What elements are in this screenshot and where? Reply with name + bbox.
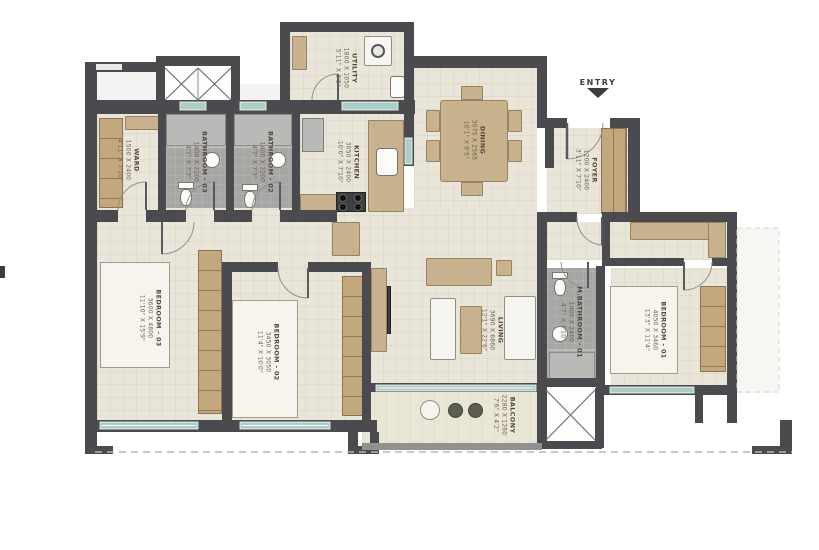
terrace-dashed-outline — [737, 228, 779, 392]
entry-arrow-icon — [587, 88, 609, 98]
room-label-kitchen: KITCHEN 3050 X 2400 10'0" X 7'10" — [336, 120, 361, 204]
room-label-ward: WARD 1500 X 2400 4'11" X 7'10" — [116, 123, 141, 197]
room-label-m-bathroom-01: M.BATHROOM - 01 1400 X 2400 4'7" X 7'10" — [559, 270, 584, 374]
room-label-living: LIVING 3690 X 6860 12'1" X 22'6" — [480, 285, 505, 375]
room-label-balcony: BALCONY 2280 X 1260 7'6" X 4'2" — [492, 387, 517, 443]
floor-plan: ENTRY UTILITY 1800 X 1050 5'11" X 3'5" W… — [0, 0, 819, 550]
room-label-bedroom-01: BEDROOM - 01 4050 X 3460 13'3" X 11'4" — [643, 286, 668, 374]
room-label-bedroom-02: BEDROOM - 02 3450 X 3050 11'4" X 10'0" — [256, 309, 281, 395]
lift-symbol — [165, 68, 231, 100]
entry-label: ENTRY — [566, 78, 630, 87]
walls-and-lines-layer — [0, 0, 819, 550]
room-label-bedroom-03: BEDROOM - 03 3600 X 4800 11'10" X 15'9" — [138, 275, 163, 361]
room-label-dining: DINING 3075 X 2565 10'1" X 8'5" — [462, 100, 487, 180]
duct-symbol — [546, 390, 595, 440]
entry-marker: ENTRY — [566, 78, 630, 98]
room-label-bathroom-03: BATHROOM - 03 1400 X 2200 4'7" X 7'3" — [184, 118, 209, 206]
room-label-utility: UTILITY 1800 X 1050 5'11" X 3'5" — [334, 33, 359, 103]
room-label-foyer: FOYER 1200 X 2400 3'11" X 7'10" — [574, 130, 599, 210]
balcony-railing — [362, 443, 542, 450]
edge-artifact — [0, 266, 5, 278]
room-label-bathroom-02: BATHROOM - 02 1400 X 2200 4'7" X 7'3" — [250, 118, 275, 206]
